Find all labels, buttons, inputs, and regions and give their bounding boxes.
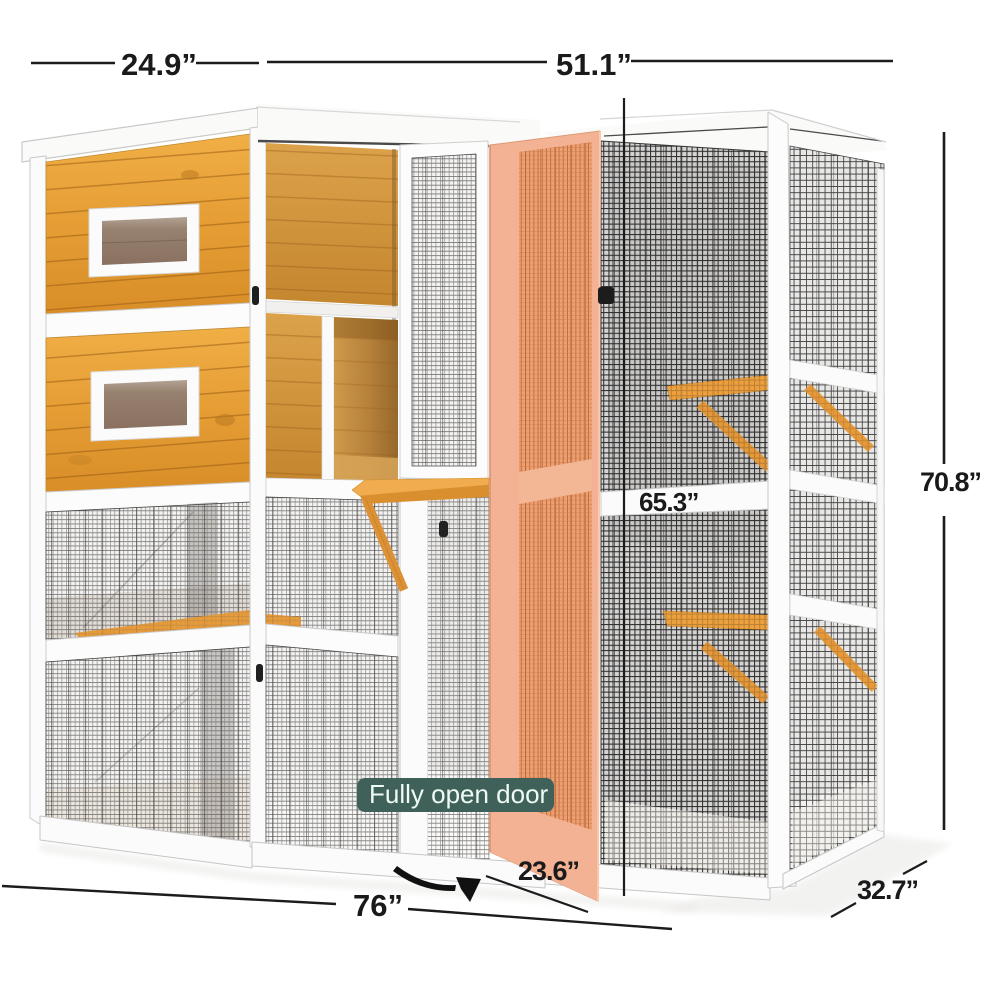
svg-text:32.7”: 32.7” bbox=[857, 875, 918, 905]
svg-text:70.8”: 70.8” bbox=[920, 467, 981, 497]
svg-text:Fully open door: Fully open door bbox=[369, 779, 549, 809]
svg-text:24.9”: 24.9” bbox=[121, 47, 197, 82]
svg-text:23.6”: 23.6” bbox=[518, 856, 579, 886]
svg-text:65.3”: 65.3” bbox=[639, 487, 699, 517]
svg-text:76”: 76” bbox=[353, 888, 403, 923]
svg-text:51.1”: 51.1” bbox=[556, 47, 632, 82]
